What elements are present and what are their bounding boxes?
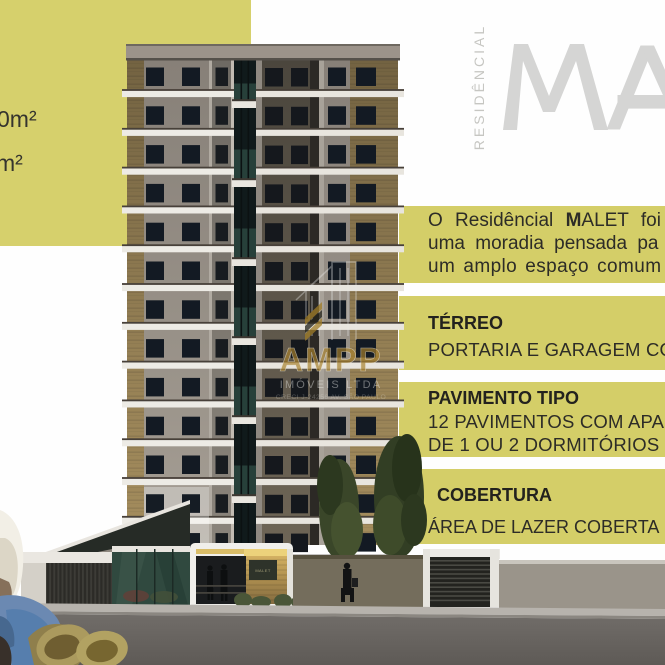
- svg-text:CRECI J-24256 AV. SÃO PAULO: CRECI J-24256 AV. SÃO PAULO: [276, 392, 386, 401]
- svg-text:AMPP: AMPP: [279, 341, 382, 378]
- svg-text:IMÓVEIS LTDA: IMÓVEIS LTDA: [280, 378, 383, 391]
- svg-text:MALET: MALET: [255, 568, 270, 573]
